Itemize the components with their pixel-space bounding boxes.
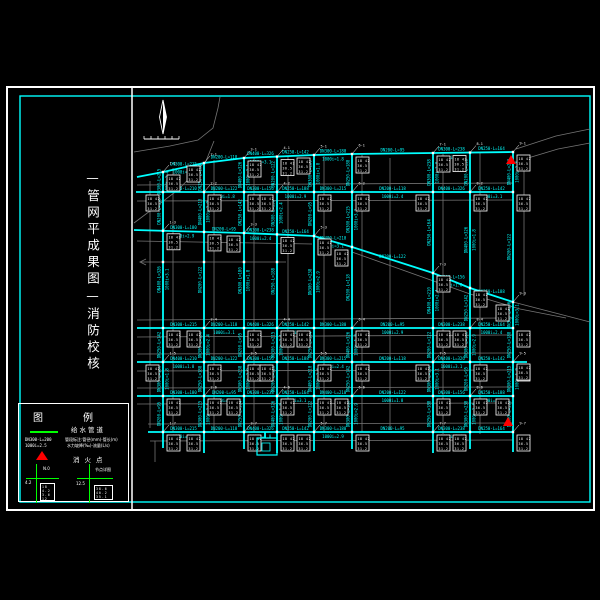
pipe-label: 1000i=2.9	[316, 271, 321, 293]
node-table-row: 18 42	[337, 252, 350, 256]
node-table-row: 36.5	[476, 298, 486, 302]
node-table-row: 36.5	[189, 173, 199, 177]
node-number: 3-1	[251, 148, 257, 152]
water-pipe-legend-symbol	[30, 431, 58, 433]
node-table-row: 31.2	[320, 411, 330, 415]
node-table-row: 31.2	[337, 411, 347, 415]
node-table-row: 31.2	[262, 207, 272, 211]
node-table-row: 36.5	[262, 202, 272, 206]
pipe-label: DN200-L=118	[346, 274, 351, 301]
pipe-node	[276, 233, 278, 235]
pipe-node	[351, 361, 353, 363]
node-table-row: 31.2	[210, 411, 220, 415]
pipe-label: DN250-L=142	[478, 186, 505, 191]
node-table-row: 31.2	[262, 377, 272, 381]
pipe-label: DN250-L=142	[478, 356, 505, 361]
node-table-row: 31.2	[250, 447, 260, 451]
pipe-annotation-note-line2: 水力坡降(‰)-流量(L/s)	[67, 443, 110, 449]
pipe-label: DN300-L=215	[507, 365, 512, 392]
node-elevation-sample: 4.2	[25, 480, 31, 485]
node-table-row: 31.2	[519, 343, 529, 347]
node-table-row: 36.5	[418, 372, 428, 376]
pipe-annotation-sample-line2: 1000i=2.5	[25, 443, 47, 448]
node-table-row: 36.5	[439, 442, 449, 446]
pipe-label: DN300-L=156	[247, 356, 274, 361]
node-table-row: 36.5	[439, 163, 449, 167]
node-table-row: 18 42	[476, 401, 489, 405]
node-table-row: 18 42	[519, 197, 532, 201]
pipe-label: DN300-L=180	[320, 322, 347, 327]
road-line	[134, 97, 220, 152]
node-table-row: 18 42	[358, 437, 371, 441]
node-table-row: 31.2	[320, 207, 330, 211]
node-table-row: 36.5	[519, 338, 529, 342]
leader-line	[513, 425, 519, 432]
pipe-label: DN300-L=215	[271, 331, 276, 358]
node-table-row: 36.5	[337, 406, 347, 410]
pipe-label: DN400-L=326	[438, 186, 465, 191]
pipe-label: DN200-L=118	[379, 186, 406, 191]
pipe-label: DN300-L=238	[238, 365, 243, 392]
node-table-row: 31.2	[439, 447, 449, 451]
pipe-label: 1000i=1.8	[165, 368, 170, 390]
node-table-row: 36.5	[519, 371, 529, 375]
node-table-row: 36.5	[455, 338, 465, 342]
node-table-row: 18 42	[519, 366, 532, 370]
node-table-row: 31.2	[210, 377, 220, 381]
node-table-row: 18 42	[210, 197, 223, 201]
node-table-row: 36.5	[418, 202, 428, 206]
node-table-sample: 18 4.2 3.6 12	[40, 483, 55, 501]
pipe-label: DN250-L=142	[157, 331, 162, 358]
node-number: 1-3	[170, 220, 176, 224]
pipe-label: 1000i=1.8	[246, 269, 251, 291]
node-table-row: 31.2	[337, 262, 347, 266]
pipe-label: DN400-L=326	[464, 226, 469, 253]
node-number: 6-4	[359, 318, 365, 322]
node-table-row: 31.2	[519, 207, 529, 211]
node-table-row: 18 42	[519, 333, 532, 337]
pipe-node	[162, 191, 164, 193]
node-table-row: 36.5	[250, 202, 260, 206]
pipe-label: DN200-L=118	[211, 322, 238, 327]
node-table-row: 18 42	[455, 333, 468, 337]
node-table-row: 36.5	[250, 442, 260, 446]
node-table-row: 31.2	[148, 377, 158, 381]
pipe-label: DN250-L=164	[282, 390, 309, 395]
pipe-label: DN300-L=215	[320, 186, 347, 191]
pipe-label: DN300-L=238	[438, 322, 465, 327]
node-table-row: 36.5	[283, 406, 293, 410]
node-table-row: 36.5	[358, 338, 368, 342]
pipe-label: DN200-L=95	[380, 322, 405, 327]
node-table-row: 31.2	[169, 447, 179, 451]
node-table-row: 18 42	[250, 333, 263, 337]
pipe-label: DN300-L=180	[238, 267, 243, 294]
node-number-sample: N.0	[43, 466, 50, 471]
node-table-row: 36.5	[358, 372, 368, 376]
road-line	[516, 129, 590, 149]
pipe-label: 1000i=2.9	[472, 334, 477, 356]
pipe-label: DN400-L=210	[198, 198, 203, 225]
node-table-row: 18 42	[210, 237, 223, 241]
node-table-row: 36.5	[189, 338, 199, 342]
node-table-row: 36.5	[498, 312, 508, 316]
node-table-row: 31.2	[250, 173, 260, 177]
node-table-row: 31.2	[283, 171, 293, 175]
pipe-label: DN400-L=326	[247, 426, 274, 431]
node-table-row: 31.2	[519, 167, 529, 171]
node-table-row: 36.5	[250, 338, 260, 342]
node-table-row: 31.2	[455, 447, 465, 451]
node-table-row: 36.5	[519, 162, 529, 166]
node-table-row: 36.5	[519, 442, 529, 446]
pipe-label: DN250-L=188	[427, 400, 432, 427]
node-table-row: 31.2	[439, 288, 449, 292]
pipe-label: DN300-L=238	[438, 426, 465, 431]
node-number: 1-5	[170, 352, 176, 356]
pipe-label: DN400-L=326	[157, 266, 162, 293]
node-table-row: 31.2	[358, 169, 368, 173]
node-table-row: 36.5	[262, 372, 272, 376]
node-table-row: 18 42	[299, 333, 312, 337]
pipe-label: DN300-L=238	[247, 390, 274, 395]
pipe-node	[243, 327, 245, 329]
node-table-row: 36.5	[169, 241, 179, 245]
pipe-label: DN300-L=180	[320, 426, 347, 431]
node-table-row: 31.2	[148, 207, 158, 211]
node-table-row: 31.2	[476, 411, 486, 415]
node-table-sample: 38.6 40.2 35.1	[94, 485, 113, 500]
node-table-row: 18 42	[250, 437, 263, 441]
node-table-row: 31.2	[229, 411, 239, 415]
node-number: 9-7	[520, 422, 526, 426]
node-table-row: 31.2	[455, 343, 465, 347]
node-number: 7-7	[440, 422, 446, 426]
node-number: 2-1	[211, 153, 217, 157]
node-number: 1-7	[170, 422, 176, 426]
node-number: 4-1	[284, 146, 290, 150]
node-number: 7-5	[440, 352, 446, 356]
pipe-label: DN300-L=238	[438, 147, 465, 152]
pipe-label: DN200-L=122	[271, 160, 276, 187]
road-line	[513, 302, 590, 322]
node-table-row: 18 42	[210, 401, 223, 405]
node-number: 2-6	[211, 386, 217, 390]
pipe-node	[469, 287, 471, 289]
pipe-label: 1000i=2.9	[354, 403, 359, 425]
pipe-label: DN200-L=122	[379, 390, 406, 395]
node-table-row: 31.2	[210, 207, 220, 211]
node-number: 9-3	[520, 292, 526, 296]
node-table-row: 31.2	[169, 343, 179, 347]
node-table-row: 18 42	[320, 241, 333, 245]
pipe-label: DN400-L=326	[271, 400, 276, 427]
pipe-node	[162, 395, 164, 397]
pipe-node	[203, 431, 205, 433]
node-table-row: 36.5	[320, 246, 330, 250]
node-table-row: 18 42	[262, 367, 275, 371]
pipe-label: 1000i=2.4	[435, 289, 440, 311]
pipe-label: DN300-L=215	[170, 426, 197, 431]
node-number: 3-3	[251, 223, 257, 227]
node-table-row: 36.5	[337, 257, 347, 261]
pipe-label: DN250-L=188	[198, 365, 203, 392]
pipe-label: DN300-L=180	[320, 148, 347, 153]
node-table-row: 18 42	[169, 401, 182, 405]
node-table-row: 31.2	[283, 411, 293, 415]
pipe-label: DN200-L=122	[379, 254, 406, 259]
pipe-label: 1000i=2.9	[322, 434, 344, 439]
node-table-row: 31.2	[189, 178, 199, 182]
pipe-label: 1000i=1.8	[472, 229, 477, 251]
sheet-title-vertical: —管网平成果图—消防校核	[84, 170, 100, 410]
node-table-row: 18 42	[148, 197, 161, 201]
pipe-node	[243, 395, 245, 397]
pipe-label: DN200-L=118	[379, 356, 406, 361]
node-number: 3-7	[251, 422, 257, 426]
pipe-label: DN300-L=238	[308, 268, 313, 295]
node-number: 6-1	[359, 144, 365, 148]
node-table-row: 36.5	[148, 202, 158, 206]
leader-line	[352, 147, 358, 154]
node-table-row: 36.5	[439, 283, 449, 287]
node-number: 1-1	[170, 162, 176, 166]
pipe-label: DN400-L=326	[346, 331, 351, 358]
node-table-row: 18 42	[439, 333, 452, 337]
pipe-label: 1000i=1.8	[382, 398, 404, 403]
node-table-row: 18 42	[439, 278, 452, 282]
pipe-label: DN300-L=215	[320, 356, 347, 361]
node-cross-icon	[77, 478, 113, 479]
node-cross-icon	[26, 478, 59, 479]
node-table-row: 18 42	[519, 437, 532, 441]
pipe-node	[469, 361, 471, 363]
node-table-row: 31.2	[250, 207, 260, 211]
node-number: 6-2	[359, 182, 365, 186]
pipe-label: DN250-L=188	[282, 356, 309, 361]
node-table-row: 36.5	[320, 202, 330, 206]
node-number: 6-6	[359, 386, 365, 390]
pipe-node	[313, 327, 315, 329]
node-number: 5-5	[321, 352, 327, 356]
node-table-row: 36.5	[210, 242, 220, 246]
leader-line	[470, 146, 476, 153]
node-table-row: 36.5	[455, 162, 465, 166]
pipe-label: DN250-L=164	[478, 146, 505, 151]
node-table-row: 18 42	[169, 437, 182, 441]
node-table-row: 31.2	[210, 247, 220, 251]
pipe-node	[203, 231, 205, 233]
node-table-row: 18 42	[498, 401, 511, 405]
node-detail-sample-label: 节点详图	[95, 467, 111, 473]
node-table-row: 31.2	[439, 168, 449, 172]
pipe-label: DN200-L=122	[211, 356, 238, 361]
pipe-label: DN300-L=238	[427, 159, 432, 186]
node-number: 5-7	[321, 422, 327, 426]
node-table-row: 18 42	[283, 161, 296, 165]
pipe-label: 1000i=2.4	[206, 334, 211, 356]
node-table-row: 18 42	[169, 177, 182, 181]
pipe-label: DN400-L=326	[247, 151, 274, 156]
node-number: 9-1	[520, 142, 526, 146]
road-line	[137, 387, 513, 388]
node-number: 8-1	[477, 142, 483, 146]
pipe-label: DN250-L=142	[282, 426, 309, 431]
node-table-row: 36.5	[283, 244, 293, 248]
node-table-row: 36.5	[169, 182, 179, 186]
pipe-label: DN250-L=142	[282, 322, 309, 327]
node-table-row: 31.2	[498, 317, 508, 321]
pipe-label: DN200-L=122	[198, 266, 203, 293]
node-table-row: 18 42	[476, 197, 489, 201]
node-number: 2-4	[211, 318, 217, 322]
node-table-row: 36.5	[229, 406, 239, 410]
pipe-label: 1000i=2.9	[382, 330, 404, 335]
pipe-label: 1000i=3.1	[515, 304, 520, 326]
node-table-row: 36.5	[148, 372, 158, 376]
node-table-row: 31.2	[519, 376, 529, 380]
pipe-node	[203, 361, 205, 363]
node-table-row: 18 42	[320, 197, 333, 201]
node-table-row: 18 42	[169, 236, 182, 240]
node-table-row: 18 42	[439, 437, 452, 441]
pipe-label: DN300-L=180	[170, 225, 197, 230]
node-table-row: 31.2	[169, 246, 179, 250]
pipe-node	[276, 261, 278, 263]
node-table-row: 18 42	[229, 401, 242, 405]
pipe-label: DN300-L=180	[170, 390, 197, 395]
node-table-row: 36.5	[476, 406, 486, 410]
fire-hydrant-legend-label: 消火点	[73, 454, 108, 464]
legend-title: 图例	[33, 409, 133, 424]
leader-line	[513, 355, 519, 362]
pipe-node	[243, 191, 245, 193]
node-table-row: 36.5	[439, 406, 449, 410]
node-table-row: 36.5	[476, 202, 486, 206]
node-table-row: 31.2	[169, 187, 179, 191]
pipe-node	[512, 191, 514, 193]
pipe-label: 1000i=3.1	[435, 368, 440, 390]
pipe-label: DN400-L=210	[170, 356, 197, 361]
node-table-row: 31.2	[169, 411, 179, 415]
pipe-label: DN300-L=156	[247, 186, 274, 191]
node-table-row: 36.5	[229, 243, 239, 247]
node-table-row: 31.2	[358, 343, 368, 347]
node-number: 2-2	[211, 182, 217, 186]
node-number: 8-4	[477, 318, 483, 322]
node-table-row: 36.5	[169, 338, 179, 342]
node-table-row: 31.2	[476, 303, 486, 307]
node-table-row: 18 42	[476, 293, 489, 297]
node-table-row: 36.5	[320, 406, 330, 410]
node-table-row: 18 42	[476, 367, 489, 371]
node-table-row: 18 42	[418, 197, 431, 201]
node-table-row: 31.2	[358, 447, 368, 451]
pipe-node	[432, 327, 434, 329]
node-number: 4-4	[284, 318, 290, 322]
pipe-label: DN200-L=95	[212, 390, 237, 395]
pipe-label: 1000i=1.8	[322, 157, 344, 162]
pipe-label: DN200-L=95	[308, 201, 313, 226]
node-table-row: 18 42	[358, 333, 371, 337]
node-table-row: 18 42	[189, 437, 202, 441]
pipe-node	[512, 327, 514, 329]
pipe-label: DN200-L=95	[238, 332, 243, 357]
pipe-label: DN400-L=210	[308, 365, 313, 392]
node-table-row: 18 42	[320, 367, 333, 371]
node-table-row: 36.5	[283, 166, 293, 170]
node-number: 8-2	[477, 182, 483, 186]
pipe-node	[276, 361, 278, 363]
node-table-row: 31.2	[358, 207, 368, 211]
node-table-row: 36.5	[358, 202, 368, 206]
node-table-row: 36.5	[169, 442, 179, 446]
water-pipe-legend-label: 给水管道	[71, 424, 105, 434]
node-table-row: 18 42	[358, 159, 371, 163]
node-table-row: 31.2	[519, 447, 529, 451]
pipe-label: DN250-L=142	[282, 150, 309, 155]
pipe-label: DN200-L=95	[380, 147, 405, 152]
node-number: 7-1	[440, 143, 446, 147]
node-table-row: 31.2	[250, 377, 260, 381]
node-table-row: 31.2	[250, 343, 260, 347]
pipe-label: DN400-L=210	[427, 287, 432, 314]
node-number: 5-1	[321, 145, 327, 149]
node-table-row: 31.2	[498, 411, 508, 415]
node-table-row: 36.5	[210, 406, 220, 410]
node-table-row: 31.2	[476, 207, 486, 211]
node-table-row: 18 42	[358, 367, 371, 371]
pipe-label: DN200-L=95	[464, 366, 469, 391]
pipe-label: DN200-L=122	[507, 233, 512, 260]
node-table-row: 18 42	[283, 437, 296, 441]
pipe-node	[162, 261, 164, 263]
pipe-label: DN300-L=215	[346, 206, 351, 233]
pipe-label: 1000i=1.8	[173, 364, 195, 369]
pipe-node	[469, 431, 471, 433]
pipe-node	[512, 395, 514, 397]
pipe-label: DN200-L=95	[157, 401, 162, 426]
pipe-label: DN300-L=215	[170, 322, 197, 327]
node-number: 4-2	[284, 182, 290, 186]
pipe-label: DN250-L=188	[271, 267, 276, 294]
node-table-row: 18 42	[148, 367, 161, 371]
special-node-box-inner	[262, 443, 270, 451]
node-table-row: 31.2	[189, 343, 199, 347]
node-table-row: 36.5	[439, 338, 449, 342]
node-table-row: 36.5	[476, 372, 486, 376]
node-table-row: 36.5	[299, 338, 309, 342]
pipe-label: DN200-L=122	[427, 331, 432, 358]
node-table-row: 36.5	[299, 165, 309, 169]
pipe-label: DN400-L=326	[247, 322, 274, 327]
node-table-row: 18 42	[337, 401, 350, 405]
node-number: 5-3	[321, 226, 327, 230]
node-table-row: 36.5	[320, 372, 330, 376]
node-table-row: 18 42	[299, 437, 312, 441]
pipe-label: 1000i=2.4	[279, 202, 284, 224]
node-table-row: 18 42	[210, 367, 223, 371]
pipe-label: 1000i=2.4	[382, 194, 404, 199]
node-table-row: 31.2	[439, 343, 449, 347]
node-table-row: 36.5	[358, 442, 368, 446]
node-table-row: 36.5	[455, 442, 465, 446]
pipe-label: DN250-L=188	[346, 159, 351, 186]
node-table-row: 18 42	[250, 163, 263, 167]
fire-hydrant-icon	[503, 417, 513, 426]
pipe-label: DN250-L=142	[238, 199, 243, 226]
